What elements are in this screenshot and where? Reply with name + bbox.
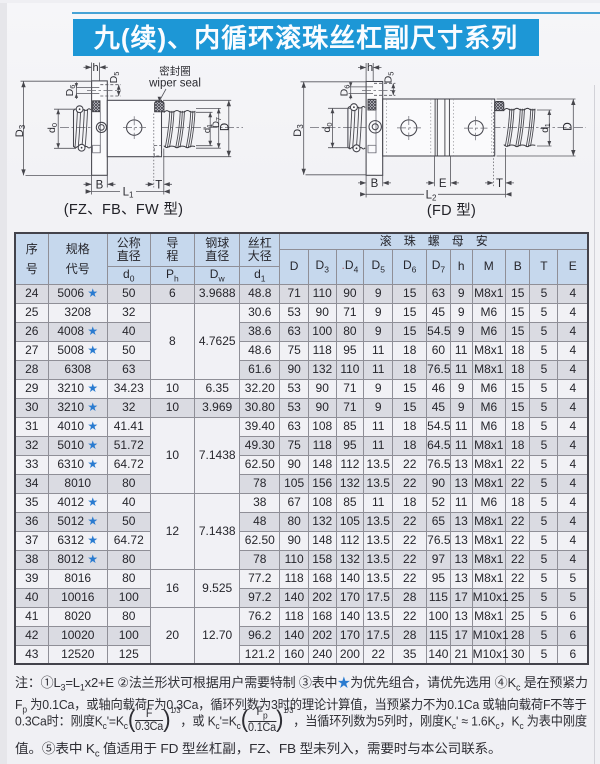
svg-text:D: D [220,123,232,131]
svg-text:T: T [155,179,162,191]
svg-text:h: h [367,62,373,74]
svg-text:L2: L2 [426,189,437,202]
svg-text:D6: D6 [339,85,352,97]
svg-text:密封圈: 密封圈 [159,65,191,78]
svg-text:D: D [561,122,575,131]
svg-text:d0: d0 [46,123,59,133]
svg-text:d1: d1 [540,123,552,133]
svg-text:h: h [93,62,99,74]
svg-text:(FD 型): (FD 型) [427,202,476,219]
svg-text:D6: D6 [64,85,77,97]
svg-text:d0: d0 [321,122,334,132]
svg-text:B: B [371,178,379,190]
svg-text:T: T [496,178,503,190]
svg-text:E: E [439,178,447,190]
svg-text:D3: D3 [292,124,305,137]
svg-text:B: B [96,179,104,191]
svg-text:D5: D5 [108,72,121,84]
svg-text:D3: D3 [14,124,27,137]
svg-text:L1: L1 [123,187,134,200]
svg-text:D5: D5 [383,72,396,84]
svg-text:(FZ、FB、FW 型): (FZ、FB、FW 型) [64,201,184,218]
svg-text:wiper seal: wiper seal [148,78,201,90]
